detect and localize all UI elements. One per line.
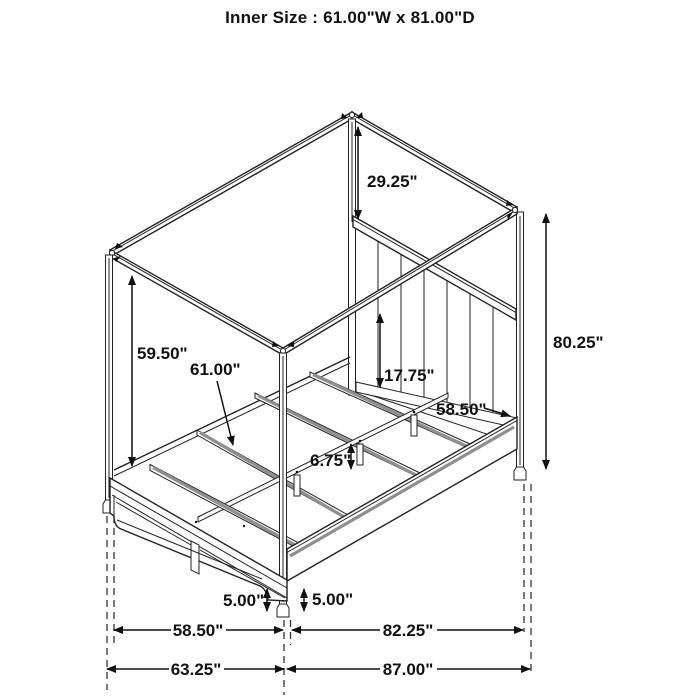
dim-label-overall-height: 80.25": [553, 333, 604, 352]
dim-label-siderail-floor-depth: 82.25": [383, 621, 434, 640]
dim-label-slat-leg-height: 6.75": [310, 451, 351, 470]
canopy-frame: [110, 112, 517, 257]
dim-label-overall-depth: 87.00": [383, 660, 434, 679]
dim-label-headboard-panel-height: 17.75": [384, 366, 435, 385]
bed-post-head-left: [349, 119, 356, 395]
furniture-dimension-diagram: Inner Size : 61.00"W x 81.00"D: [0, 0, 700, 700]
dim-label-headboard-width: 58.50": [436, 400, 487, 419]
dim-label-canopy-underside-height: 59.50": [137, 344, 188, 363]
bed-line-drawing: 29.25" 80.25" 59.50" 61.00" 17.75" 58.50…: [0, 0, 700, 700]
dim-label-canopy-drop: 29.25": [367, 172, 418, 191]
bed-post-foot-left: [103, 255, 115, 513]
dim-label-footboard-floor-width: 58.50": [173, 621, 224, 640]
dim-label-overall-width: 63.25": [171, 660, 222, 679]
dim-label-siderail-clearance: 5.00": [312, 590, 353, 609]
dim-label-footboard-clearance: 5.00": [223, 591, 264, 610]
dim-label-inner-width: 61.00": [190, 360, 241, 379]
